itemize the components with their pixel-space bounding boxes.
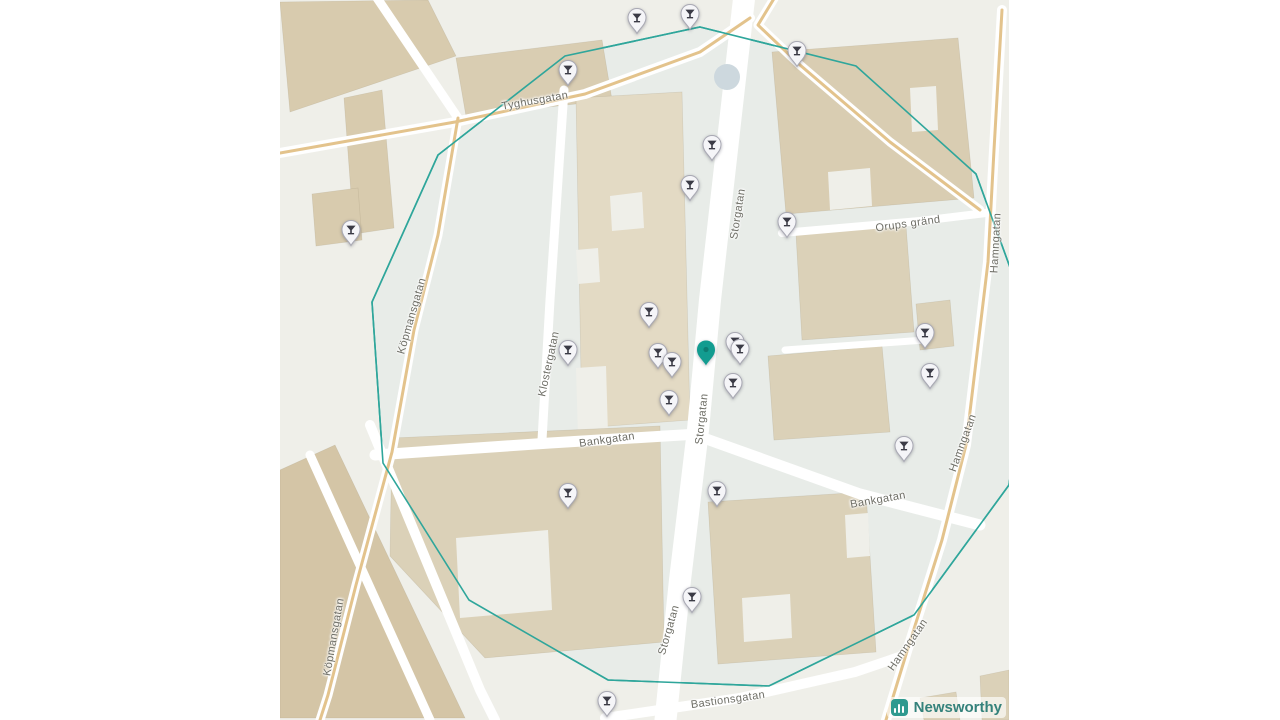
- venue-marker[interactable]: [914, 322, 936, 350]
- newsworthy-brand-text: Newsworthy: [914, 699, 1002, 716]
- venue-marker[interactable]: [893, 435, 915, 463]
- venue-marker[interactable]: [679, 3, 701, 31]
- venue-marker[interactable]: [557, 482, 579, 510]
- venue-marker[interactable]: [729, 338, 751, 366]
- venue-marker[interactable]: [919, 362, 941, 390]
- venue-marker[interactable]: [681, 586, 703, 614]
- venue-marker[interactable]: [596, 690, 618, 718]
- venue-marker[interactable]: [340, 219, 362, 247]
- center-location-pin[interactable]: [695, 339, 717, 367]
- newsworthy-attribution[interactable]: Newsworthy: [887, 697, 1006, 718]
- venue-marker[interactable]: [776, 211, 798, 239]
- venue-marker[interactable]: [679, 174, 701, 202]
- venue-marker[interactable]: [706, 480, 728, 508]
- venue-marker[interactable]: [722, 372, 744, 400]
- venue-marker[interactable]: [658, 389, 680, 417]
- venue-marker[interactable]: [701, 134, 723, 162]
- page-root: TyghusgatanStorgatanStorgatanStorgatanKö…: [0, 0, 1280, 720]
- venue-marker[interactable]: [626, 7, 648, 35]
- newsworthy-logo-icon: [891, 699, 908, 716]
- venue-marker[interactable]: [557, 339, 579, 367]
- map-canvas[interactable]: TyghusgatanStorgatanStorgatanStorgatanKö…: [280, 0, 1009, 720]
- basemap-svg: [280, 0, 1009, 720]
- fountain-circle: [714, 64, 740, 90]
- venue-marker[interactable]: [557, 59, 579, 87]
- venue-marker[interactable]: [638, 301, 660, 329]
- venue-marker[interactable]: [786, 40, 808, 68]
- venue-marker[interactable]: [661, 351, 683, 379]
